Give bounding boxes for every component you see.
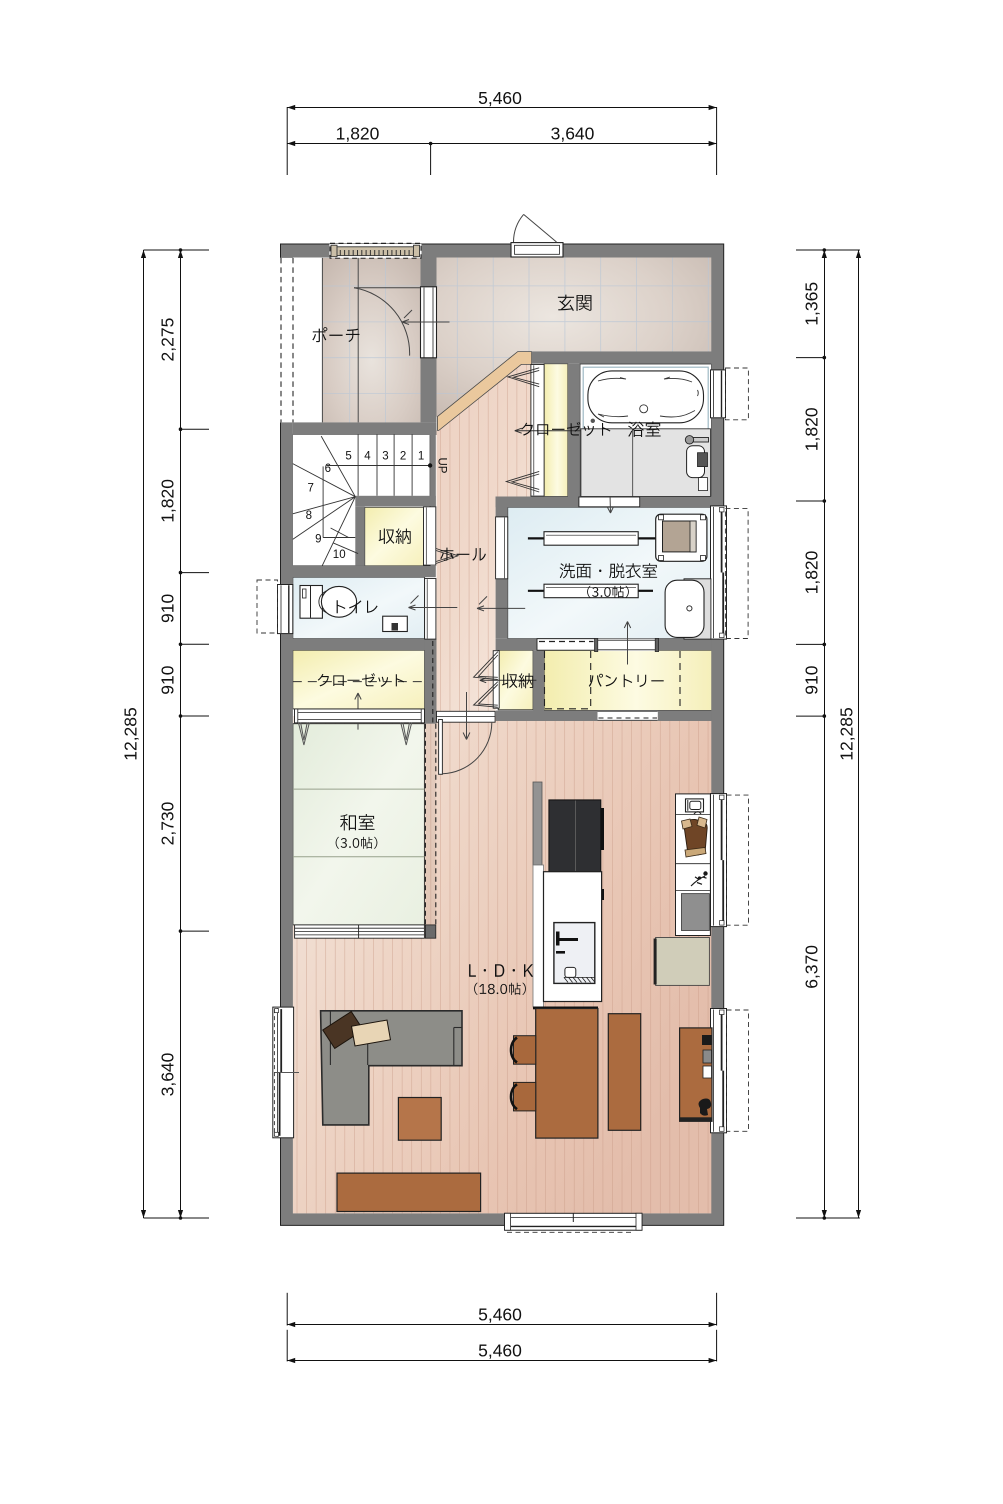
svg-text:7: 7	[307, 483, 313, 495]
svg-text:5: 5	[345, 451, 351, 463]
svg-text:1,365: 1,365	[802, 282, 822, 326]
svg-text:4: 4	[364, 451, 371, 463]
svg-text:1,820: 1,820	[802, 550, 822, 594]
svg-text:3,640: 3,640	[158, 1052, 178, 1096]
svg-text:2: 2	[400, 451, 406, 463]
svg-text:UP: UP	[436, 458, 448, 474]
svg-text:1,820: 1,820	[158, 479, 178, 523]
svg-text:10: 10	[333, 549, 346, 561]
svg-text:6,370: 6,370	[802, 945, 822, 989]
svg-text:2,730: 2,730	[158, 801, 178, 845]
svg-text:5,460: 5,460	[478, 1341, 522, 1361]
svg-text:910: 910	[802, 665, 822, 694]
svg-text:2,275: 2,275	[158, 318, 178, 362]
svg-text:12,285: 12,285	[837, 707, 857, 761]
svg-text:9: 9	[315, 534, 321, 546]
svg-text:910: 910	[158, 665, 178, 694]
svg-text:8: 8	[306, 510, 312, 522]
svg-text:12,285: 12,285	[121, 707, 141, 761]
svg-text:5,460: 5,460	[478, 1305, 522, 1325]
svg-text:1: 1	[418, 451, 424, 463]
svg-text:1,820: 1,820	[336, 124, 380, 144]
svg-text:5,460: 5,460	[478, 88, 522, 108]
svg-text:3: 3	[382, 451, 388, 463]
svg-text:6: 6	[325, 463, 331, 475]
svg-text:1,820: 1,820	[802, 407, 822, 451]
svg-text:910: 910	[158, 594, 178, 623]
svg-text:3,640: 3,640	[551, 124, 595, 144]
